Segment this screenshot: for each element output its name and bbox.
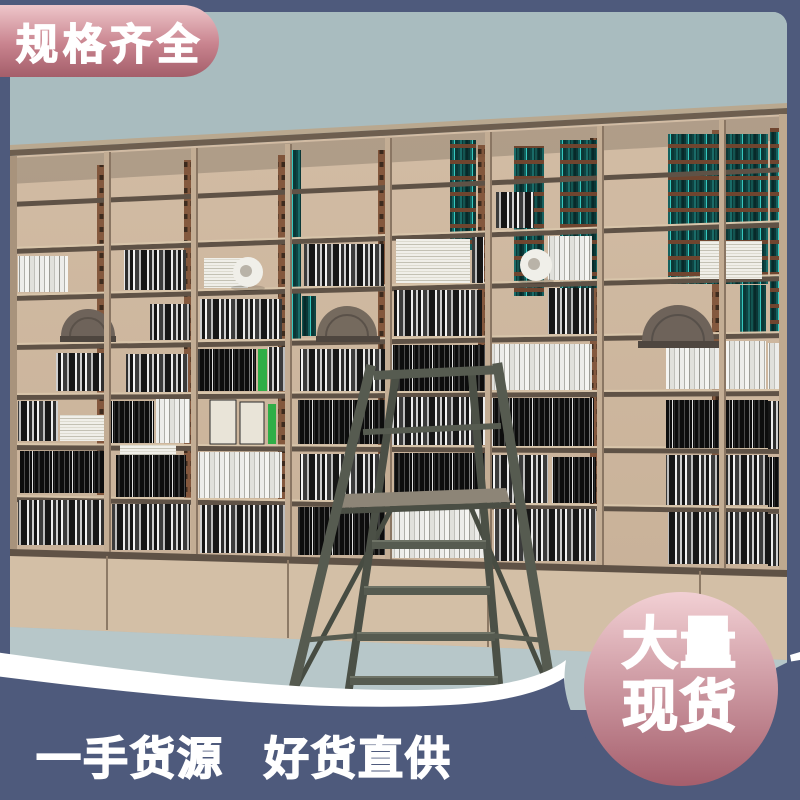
stock-badge: 大量 现货 <box>595 612 765 738</box>
slogan-part2: 好货直供 <box>264 722 452 787</box>
stock-badge-line2: 现货 <box>595 675 765 738</box>
slogan-part1: 一手货源 <box>36 722 224 787</box>
stock-badge-line1: 大量 <box>595 612 765 675</box>
spec-banner: 规格齐全 <box>0 5 219 77</box>
spec-banner-label: 规格齐全 <box>16 11 204 72</box>
product-image <box>10 12 787 710</box>
slogan: 一手货源 好货直供 <box>36 722 452 787</box>
bookshelf-scene <box>10 12 787 710</box>
